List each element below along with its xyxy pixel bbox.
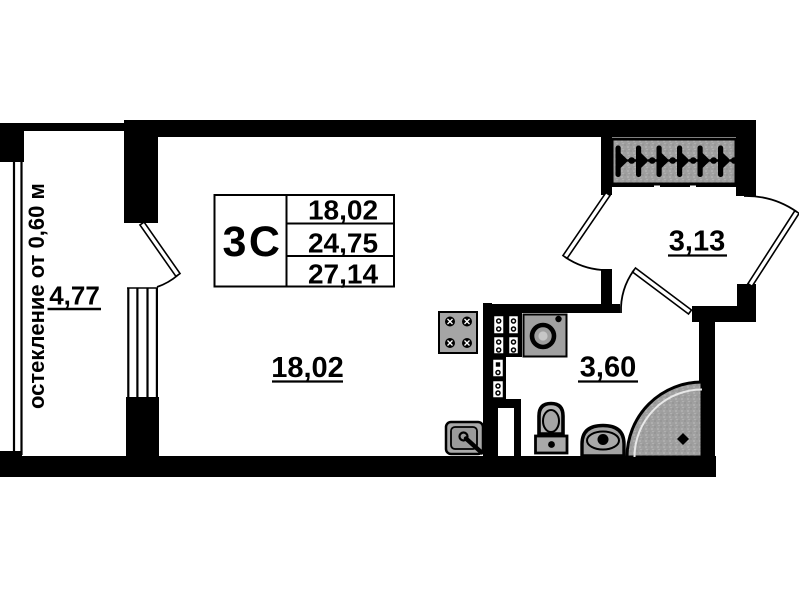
svg-text:3С: 3С xyxy=(223,218,283,266)
svg-text:18,02: 18,02 xyxy=(271,352,344,384)
svg-text:3,13: 3,13 xyxy=(669,226,725,258)
svg-text:остекление от 0,60 м: остекление от 0,60 м xyxy=(24,183,49,409)
svg-text:24,75: 24,75 xyxy=(308,228,378,259)
svg-text:18,02: 18,02 xyxy=(308,195,378,226)
svg-text:4,77: 4,77 xyxy=(49,281,100,311)
svg-text:3,60: 3,60 xyxy=(580,352,636,384)
svg-text:27,14: 27,14 xyxy=(308,259,378,290)
